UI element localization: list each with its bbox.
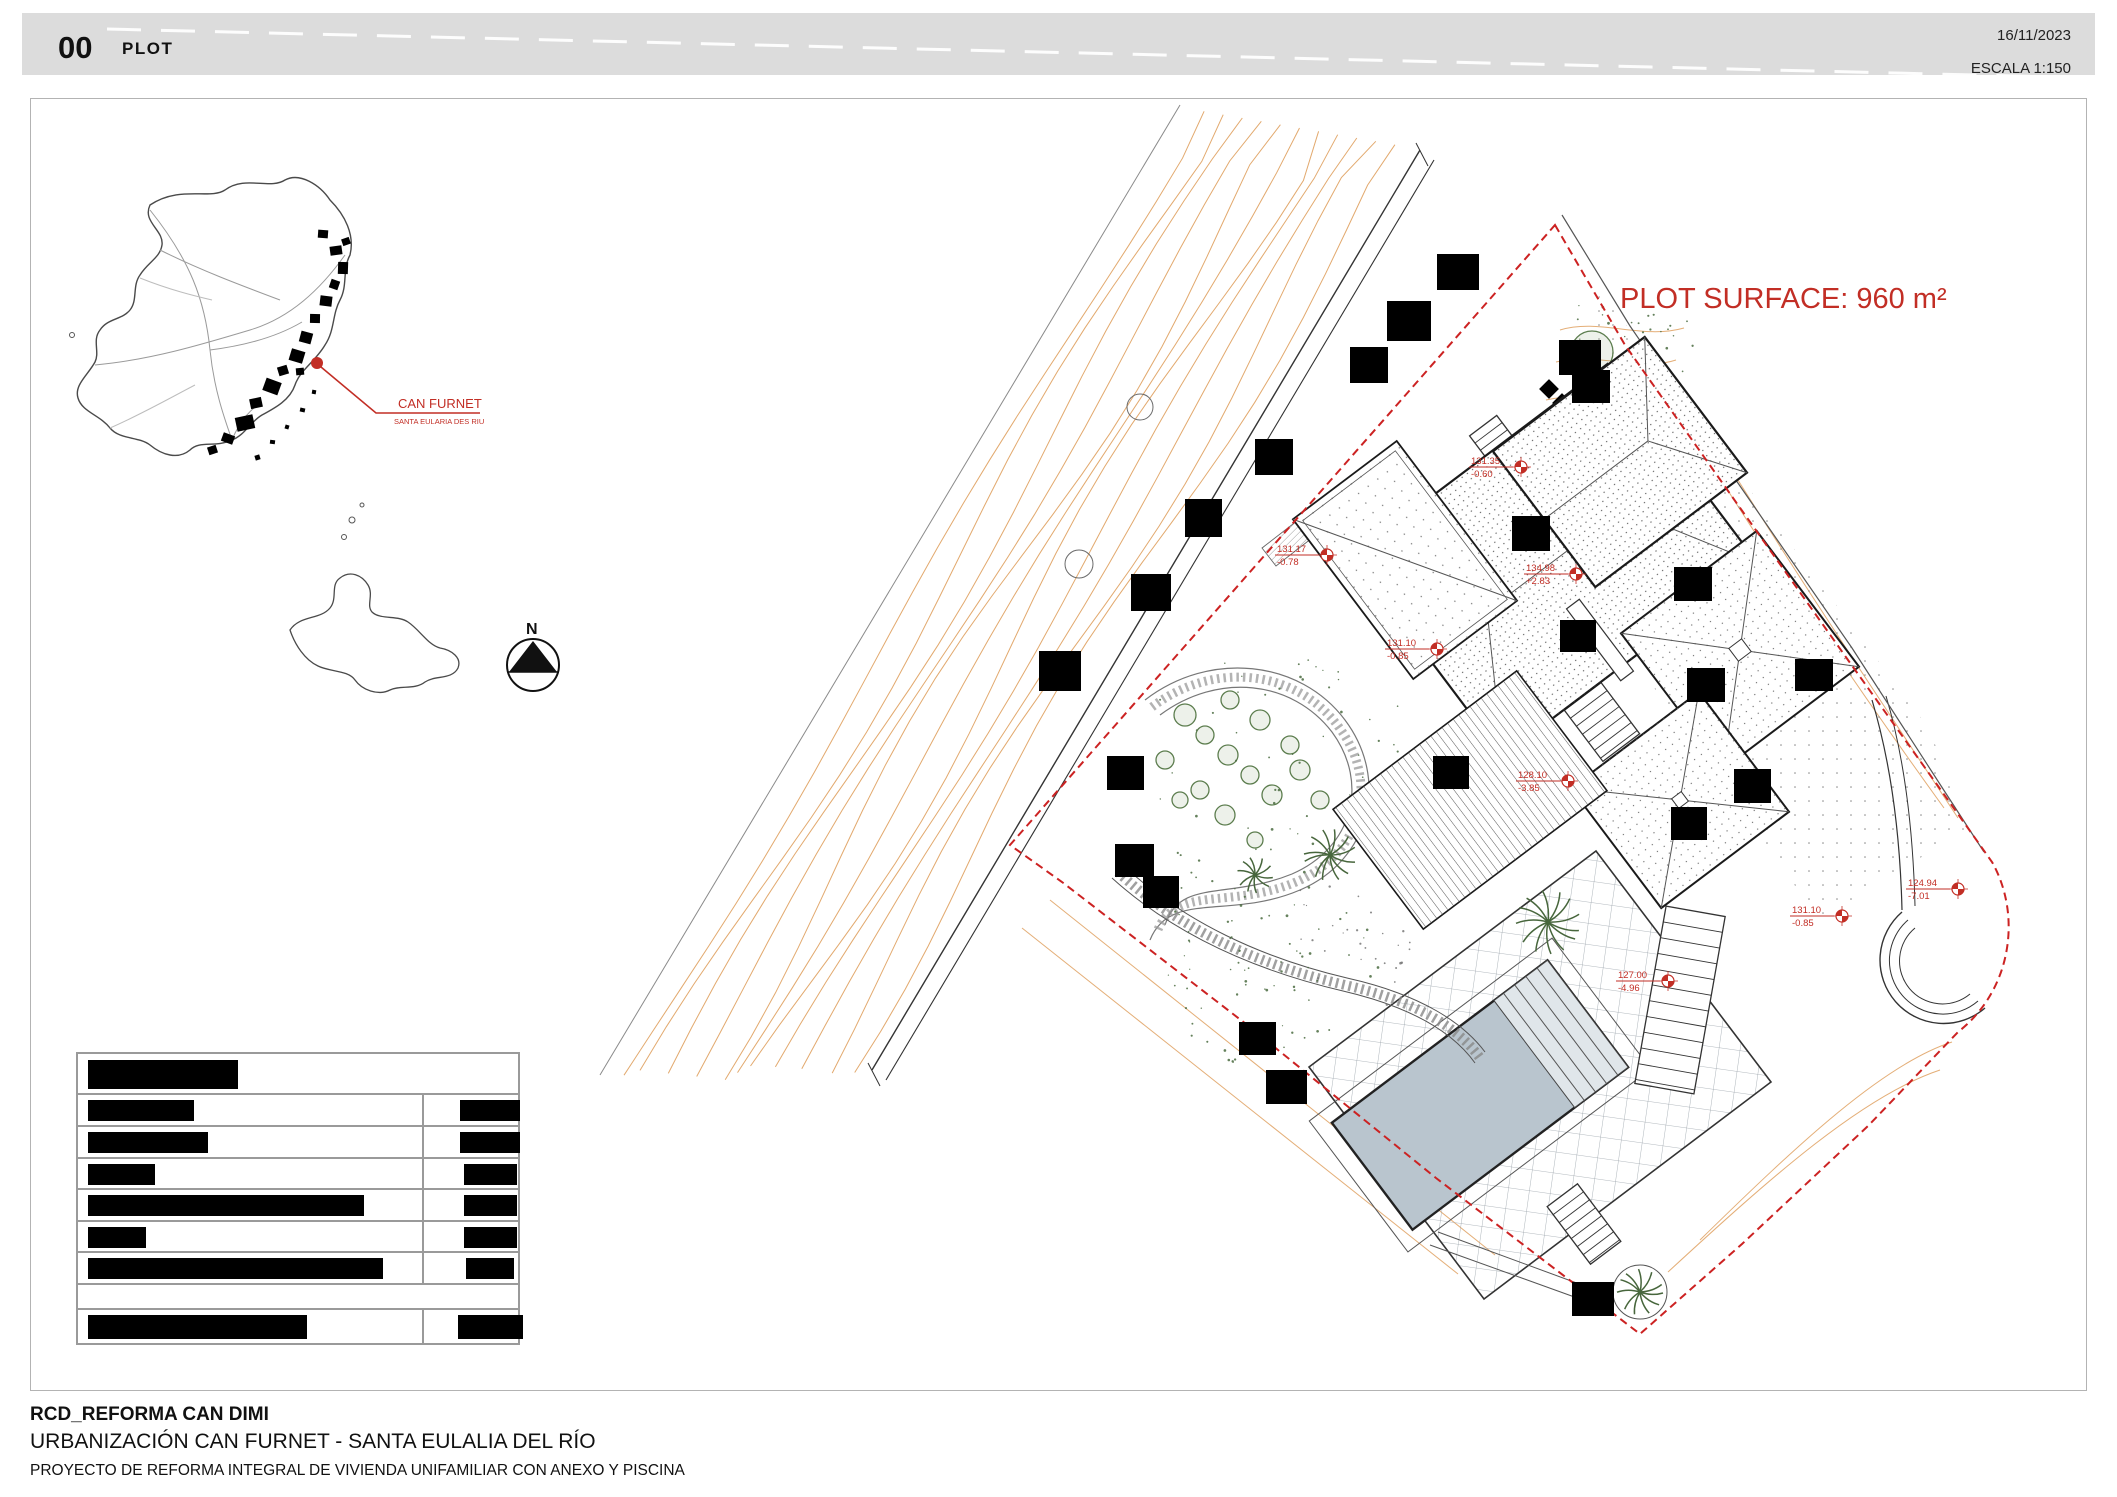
level-value: 131.10 xyxy=(1387,638,1416,649)
location-label: CAN FURNET xyxy=(398,396,482,411)
contour-line xyxy=(751,131,1319,1066)
redacted-text-bar xyxy=(88,1132,208,1153)
redacted-label xyxy=(1671,807,1707,840)
plot-surface-label: PLOT SURFACE: 960 m² xyxy=(1620,283,1947,315)
formentera-island-outline xyxy=(290,574,459,692)
location-sublabel: SANTA EULARIA DES RIU xyxy=(394,417,484,426)
redacted-label xyxy=(1572,1282,1614,1316)
bush xyxy=(1247,832,1263,848)
bush xyxy=(1241,766,1259,784)
contour-line xyxy=(725,125,1280,1080)
hillside-trees xyxy=(1065,394,1153,578)
redacted-value-bar xyxy=(460,1132,520,1153)
urban-area-blob xyxy=(296,368,305,376)
legend-column-divider xyxy=(422,1159,424,1189)
contour-line xyxy=(624,111,1204,1075)
bush xyxy=(1221,691,1239,709)
legend-row xyxy=(78,1220,518,1252)
legend-row xyxy=(78,1283,518,1309)
urban-area-blob xyxy=(285,425,290,430)
redacted-value-bar xyxy=(464,1164,517,1185)
legend-row xyxy=(78,1308,518,1343)
redacted-label xyxy=(1387,301,1431,341)
legend-row xyxy=(78,1157,518,1189)
legend-column-divider xyxy=(422,1127,424,1157)
redacted-value-bar xyxy=(464,1227,517,1248)
bush xyxy=(1262,785,1282,805)
redacted-text-bar xyxy=(88,1258,383,1279)
redacted-text-bar xyxy=(88,1227,146,1248)
project-description: PROYECTO DE REFORMA INTEGRAL DE VIVIENDA… xyxy=(30,1462,1630,1480)
legend-table xyxy=(76,1052,520,1345)
project-location: URBANIZACIÓN CAN FURNET - SANTA EULALIA … xyxy=(30,1430,1630,1454)
redacted-label xyxy=(1795,659,1833,691)
level-relative-value: -0.85 xyxy=(1792,918,1814,929)
redacted-text-bar xyxy=(88,1100,194,1121)
access-road xyxy=(868,143,1434,1086)
redacted-label xyxy=(1039,651,1081,691)
redacted-label xyxy=(1115,844,1154,877)
redacted-label xyxy=(1572,370,1610,403)
contour-line xyxy=(738,128,1300,1073)
contour-line xyxy=(697,121,1262,1076)
level-relative-value: -7.01 xyxy=(1908,891,1930,902)
legend-column-divider xyxy=(422,1222,424,1252)
level-relative-value: +2.83 xyxy=(1526,576,1550,587)
urban-area-blob xyxy=(310,314,320,323)
legend-row xyxy=(78,1188,518,1220)
redacted-label xyxy=(1512,516,1550,551)
bush xyxy=(1311,791,1329,809)
legend-row xyxy=(78,1093,518,1125)
drawing-sheet: 00 PLOT 16/11/2023 ESCALA 1:150 xyxy=(0,0,2117,1497)
bush xyxy=(1196,726,1214,744)
urban-area-blob xyxy=(338,262,348,274)
bush xyxy=(1250,710,1270,730)
legend-column-divider xyxy=(422,1190,424,1220)
bush xyxy=(1174,704,1196,726)
north-label: N xyxy=(526,621,538,638)
urban-area-blob xyxy=(312,390,317,395)
urban-area-blob xyxy=(329,245,342,256)
urban-area-blob xyxy=(300,408,306,413)
location-map: CAN FURNET SANTA EULARIA DES RIU xyxy=(70,178,485,693)
level-value: 124.94 xyxy=(1908,878,1937,889)
contour-line xyxy=(802,138,1357,1069)
bush xyxy=(1215,805,1235,825)
redacted-text-bar xyxy=(88,1164,155,1185)
redacted-label xyxy=(1255,439,1293,475)
redacted-label xyxy=(1433,756,1469,789)
legend-column-divider xyxy=(422,1095,424,1125)
contour-line xyxy=(832,141,1376,1073)
bush xyxy=(1218,745,1238,765)
plot-plan: PLOT SURFACE: 960 m² 131.35-0.60131.17-0… xyxy=(600,105,2009,1334)
bush xyxy=(1172,792,1188,808)
redacted-label xyxy=(1143,876,1179,908)
legend-column-divider xyxy=(422,1310,424,1343)
redacted-label xyxy=(1350,347,1388,383)
redacted-label xyxy=(1437,254,1479,290)
level-value: 134.98 xyxy=(1526,563,1555,574)
level-relative-value: -3.85 xyxy=(1518,783,1540,794)
urban-area-blob xyxy=(319,295,332,306)
legend-header-row xyxy=(78,1054,518,1093)
redacted-value-bar xyxy=(464,1195,517,1216)
level-relative-value: -0.85 xyxy=(1387,651,1409,662)
redacted-label xyxy=(1734,769,1771,803)
level-value: 128.10 xyxy=(1518,770,1547,781)
bush xyxy=(1281,736,1299,754)
urban-area-blob xyxy=(318,230,329,239)
urban-area-blob xyxy=(254,454,260,460)
redacted-value-bar xyxy=(466,1258,514,1279)
level-relative-value: -4.96 xyxy=(1618,983,1640,994)
footer: RCD_REFORMA CAN DIMI URBANIZACIÓN CAN FU… xyxy=(30,1404,1630,1480)
redacted-text-bar xyxy=(88,1195,364,1216)
level-marker: 124.94-7.01 xyxy=(1906,878,1968,902)
level-value: 131.10 xyxy=(1792,905,1821,916)
bush xyxy=(1191,781,1209,799)
contour-line xyxy=(855,145,1395,1073)
redacted-label xyxy=(1239,1022,1276,1055)
legend-column-divider xyxy=(422,1253,424,1283)
redacted-label xyxy=(1266,1070,1307,1104)
redacted-text-bar xyxy=(88,1315,307,1339)
redacted-label xyxy=(1674,567,1712,601)
legend-row xyxy=(78,1251,518,1283)
level-value: 131.17 xyxy=(1277,544,1306,555)
urban-area-blob xyxy=(207,445,218,455)
contour-line xyxy=(775,135,1337,1067)
level-value: 131.35 xyxy=(1471,456,1500,467)
redacted-value-bar xyxy=(458,1315,523,1339)
north-arrow: N xyxy=(507,621,559,691)
redacted-label xyxy=(1559,340,1601,375)
legend-row xyxy=(78,1125,518,1157)
level-value: 127.00 xyxy=(1618,970,1647,981)
level-relative-value: -0.60 xyxy=(1471,469,1493,480)
project-code: RCD_REFORMA CAN DIMI xyxy=(30,1404,1630,1426)
redacted-text-bar xyxy=(88,1060,238,1089)
redacted-label xyxy=(1687,668,1725,702)
redacted-label xyxy=(1560,620,1596,652)
redacted-label xyxy=(1185,499,1222,537)
redacted-label xyxy=(1107,756,1144,790)
redacted-value-bar xyxy=(460,1100,520,1121)
level-relative-value: -0.78 xyxy=(1277,557,1299,568)
bush xyxy=(1156,751,1174,769)
urban-area-blob xyxy=(270,440,275,445)
redacted-label xyxy=(1131,574,1171,611)
palm-tree xyxy=(1617,1269,1663,1314)
